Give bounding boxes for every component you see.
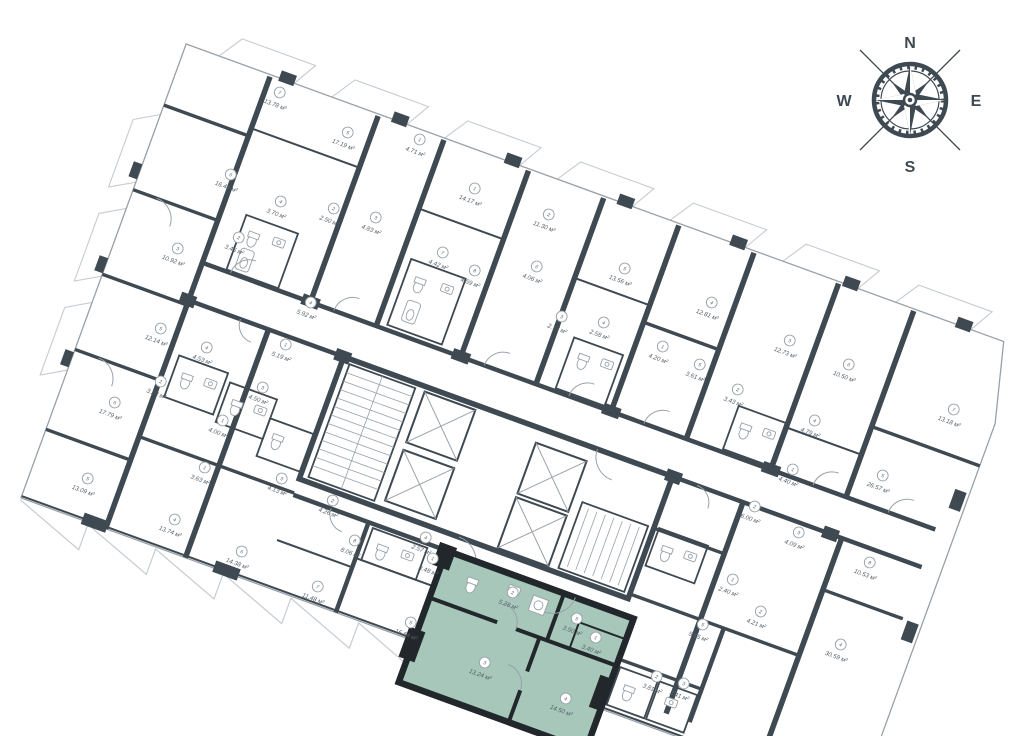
compass-label-south: S [905,159,916,176]
compass-label-north: N [904,35,916,52]
compass-rose: N E S W [836,35,981,176]
floorplan-canvas: 713.78 м²517.19 м²616.44 м²43.70 м²22.50… [0,0,1024,736]
floor-plan-page: 713.78 м²517.19 м²616.44 м²43.70 м²22.50… [0,0,1024,736]
compass-hub-dot [908,98,913,103]
compass-label-east: E [971,93,982,110]
building-plan [0,13,1024,736]
compass-label-west: W [836,93,852,110]
